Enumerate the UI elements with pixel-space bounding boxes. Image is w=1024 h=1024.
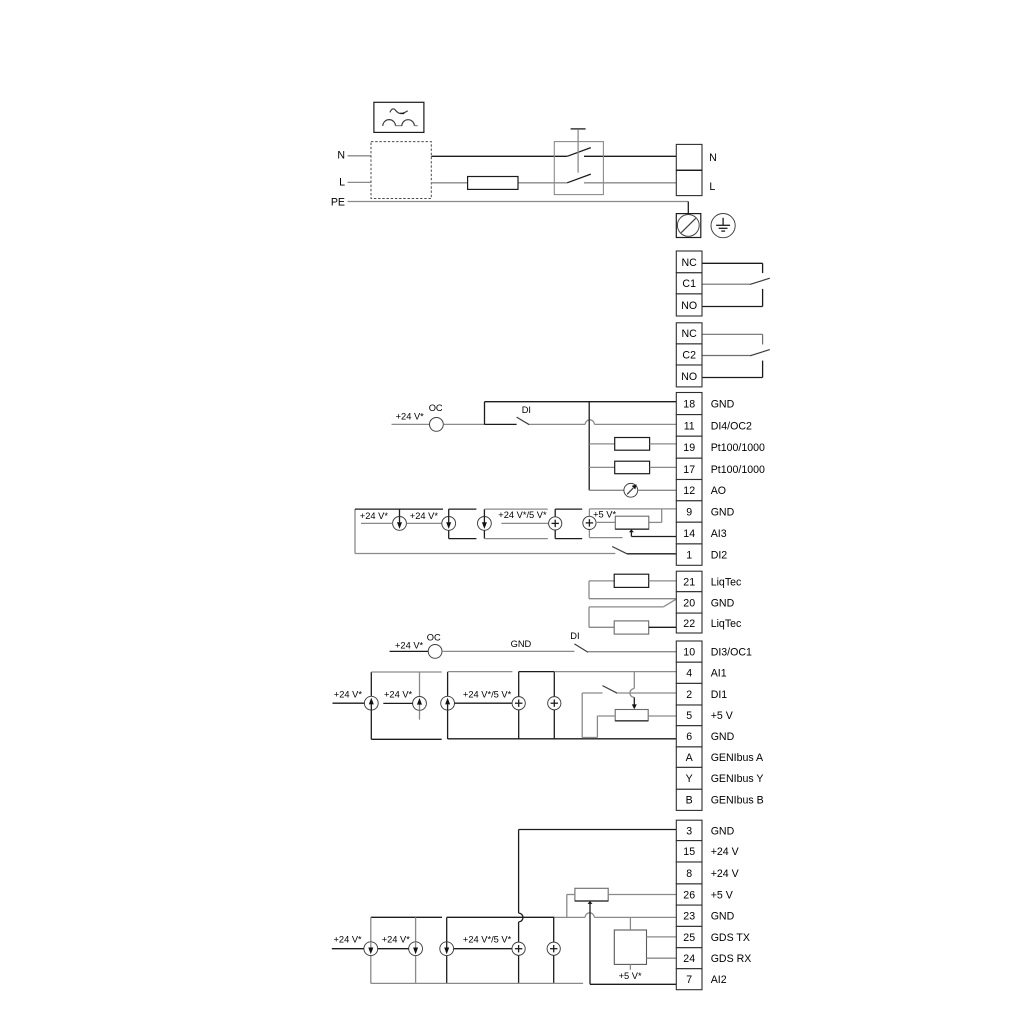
svg-text:1: 1 [686,550,692,562]
svg-text:+24 V*: +24 V* [395,641,424,651]
svg-text:12: 12 [683,485,695,497]
svg-text:Pt100/1000: Pt100/1000 [711,464,765,476]
svg-text:10: 10 [683,647,695,659]
svg-text:21: 21 [683,576,695,588]
svg-text:OC: OC [429,403,443,413]
svg-text:3: 3 [686,825,692,837]
svg-text:N: N [337,150,345,162]
svg-text:GND: GND [711,506,735,518]
svg-text:NC: NC [682,328,698,340]
svg-text:22: 22 [683,618,695,630]
svg-text:+24 V*: +24 V* [382,935,411,945]
svg-text:GND: GND [511,639,532,649]
svg-text:AI3: AI3 [711,528,727,540]
svg-text:DI2: DI2 [711,550,728,562]
svg-text:GND: GND [711,398,735,410]
svg-text:25: 25 [683,932,695,944]
svg-text:N: N [709,152,717,164]
svg-text:DI: DI [570,631,579,641]
svg-text:AO: AO [711,485,726,497]
svg-text:L: L [339,177,345,189]
svg-text:Pt100/1000: Pt100/1000 [711,442,765,454]
svg-text:+24 V*: +24 V* [384,689,413,699]
svg-text:GND: GND [711,597,735,609]
svg-text:PE: PE [331,196,345,208]
svg-text:GENIbus B: GENIbus B [711,795,764,807]
svg-text:GENIbus A: GENIbus A [711,752,764,764]
svg-text:C1: C1 [682,278,696,290]
svg-text:23: 23 [683,911,695,923]
svg-text:LiqTec: LiqTec [711,576,742,588]
svg-text:L: L [709,181,715,193]
svg-text:+24 V*/5 V*: +24 V*/5 V* [498,510,547,520]
svg-text:26: 26 [683,889,695,901]
svg-text:AI1: AI1 [711,668,727,680]
svg-text:GDS RX: GDS RX [711,953,752,965]
svg-text:OC: OC [427,632,441,642]
svg-text:9: 9 [686,506,692,518]
svg-text:+24 V: +24 V [711,868,740,880]
svg-text:19: 19 [683,442,695,454]
svg-text:7: 7 [686,974,692,986]
svg-text:11: 11 [684,420,695,432]
svg-text:GND: GND [711,825,735,837]
svg-text:Y: Y [686,773,693,785]
svg-text:LiqTec: LiqTec [711,618,742,630]
svg-text:+24 V*: +24 V* [360,511,389,521]
svg-text:NC: NC [682,257,698,269]
svg-text:GENIbus Y: GENIbus Y [711,773,764,785]
svg-text:5: 5 [686,710,692,722]
svg-text:+24 V*/5 V*: +24 V*/5 V* [463,689,512,699]
svg-text:+24 V*: +24 V* [396,411,425,421]
svg-text:GDS TX: GDS TX [711,932,750,944]
svg-text:B: B [686,795,693,807]
svg-text:+24 V*: +24 V* [334,689,363,699]
svg-text:+24 V*/5 V*: +24 V*/5 V* [463,935,512,945]
svg-text:+24 V*: +24 V* [334,935,363,945]
svg-text:DI: DI [522,405,531,415]
svg-text:A: A [686,752,694,764]
svg-text:2: 2 [686,689,692,701]
svg-text:+5 V: +5 V [711,889,734,901]
svg-text:15: 15 [683,846,695,858]
svg-text:8: 8 [686,868,692,880]
svg-text:+5 V*: +5 V* [593,509,616,519]
svg-text:NO: NO [681,300,697,312]
svg-text:4: 4 [686,668,692,680]
svg-text:DI4/OC2: DI4/OC2 [711,420,752,432]
svg-text:+5 V: +5 V [711,710,734,722]
svg-text:DI3/OC1: DI3/OC1 [711,647,752,659]
svg-text:DI1: DI1 [711,689,728,701]
svg-text:GND: GND [711,731,735,743]
svg-text:GND: GND [711,911,735,923]
svg-text:+5 V*: +5 V* [619,971,642,981]
svg-text:6: 6 [686,731,692,743]
svg-text:20: 20 [683,597,695,609]
svg-text:+24 V: +24 V [711,846,740,858]
svg-text:14: 14 [683,528,695,540]
svg-text:+24 V*: +24 V* [410,511,439,521]
svg-text:NO: NO [681,371,697,383]
svg-text:AI2: AI2 [711,974,727,986]
svg-text:C2: C2 [682,349,696,361]
svg-text:18: 18 [683,398,695,410]
svg-text:24: 24 [683,953,695,965]
svg-text:17: 17 [683,464,695,476]
